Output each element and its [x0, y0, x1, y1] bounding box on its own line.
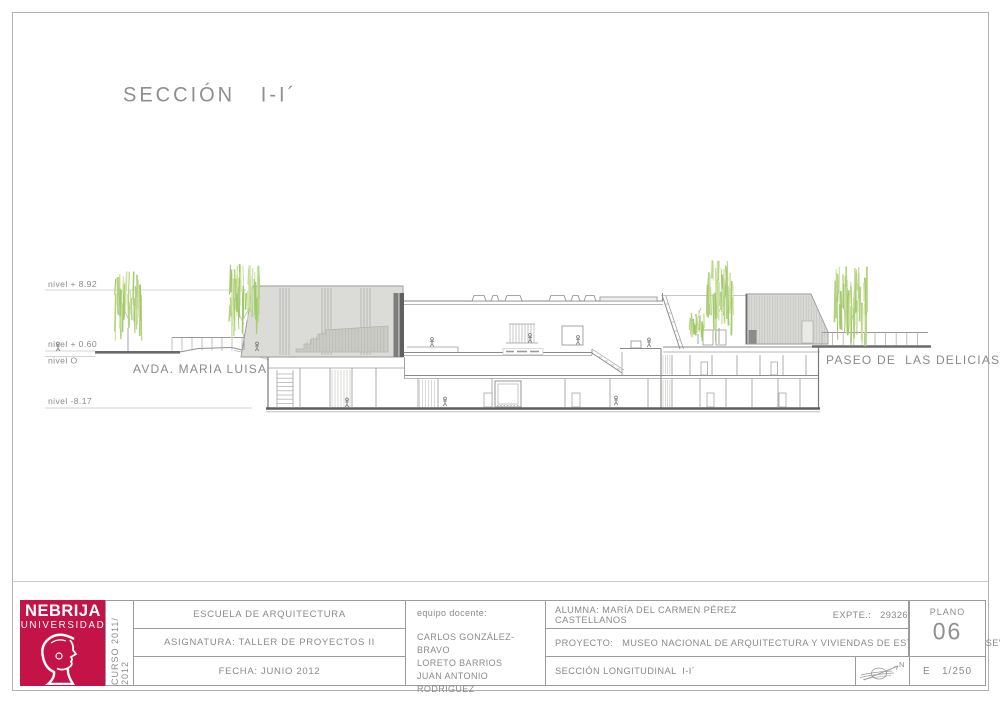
building-section [95, 286, 931, 412]
logo-name: NEBRIJA [25, 603, 101, 620]
team-member: JUAN ANTONIO RODRIGUEZ [417, 670, 545, 696]
level-label-0: nivel O [48, 356, 78, 366]
team-member: LORETO BARRIOS [417, 657, 545, 670]
date-label: FECHA: JUNIO 2012 [219, 666, 321, 677]
sheet-title-label: SECCIÓN LONGITUDINAL I-I´ [555, 666, 695, 676]
scale-label: E 1/250 [923, 666, 972, 677]
team-member: CARLOS GONZÁLEZ-BRAVO [417, 631, 545, 657]
street-label-right: PASEO DE LAS DELICIAS [826, 353, 1000, 367]
level-label-060: nivel + 0.60 [48, 339, 97, 349]
subject-cell: ASIGNATURA: TALLER DE PROYECTOS II [133, 628, 406, 657]
sheet-title-cell: SECCIÓN LONGITUDINAL I-I´ [545, 656, 856, 686]
north-label: N [899, 660, 904, 669]
team-label: equipo docente: [417, 608, 545, 618]
school-label: ESCUELA DE ARQUITECTURA [193, 609, 346, 620]
north-arrow-cell: N [855, 656, 910, 686]
expte-label: EXPTE.: 29326 [833, 610, 908, 620]
level-label-817: nivel -8.17 [48, 396, 92, 406]
date-cell: FECHA: JUNIO 2012 [133, 656, 406, 686]
school-cell: ESCUELA DE ARQUITECTURA [133, 600, 406, 629]
curso-cell: CURSO 2011/ 2012 [105, 600, 134, 686]
north-arrow-icon: N [858, 658, 908, 684]
logo-subtitle: UNIVERSIDAD [21, 620, 106, 631]
plano-cell: PLANO 06 [909, 600, 986, 657]
team-cell: equipo docente: CARLOS GONZÁLEZ-BRAVO LO… [405, 600, 546, 686]
subject-label: ASIGNATURA: TALLER DE PROYECTOS II [164, 637, 375, 648]
student-label: ALUMNA: MARÍA DEL CARMEN PÉREZ CASTELLAN… [555, 605, 791, 625]
street-label-left: AVDA. MARIA LUISA [133, 362, 267, 376]
project-cell: PROYECTO: MUSEO NACIONAL DE ARQUITECTURA… [545, 628, 909, 657]
level-lines [45, 290, 252, 408]
nebrija-logo: NEBRIJA UNIVERSIDAD [20, 600, 106, 686]
plano-label: PLANO [930, 607, 966, 617]
plano-number: 06 [933, 617, 963, 645]
level-label-892: nivel + 8.92 [48, 279, 97, 289]
curso-label: CURSO 2011/ 2012 [110, 601, 130, 685]
student-cell: ALUMNA: MARÍA DEL CARMEN PÉREZ CASTELLAN… [545, 600, 909, 629]
scale-cell: E 1/250 [909, 656, 986, 686]
section-drawing: nivel + 8.92 nivel + 0.60 nivel O nivel … [0, 0, 1000, 702]
plan-sheet: SECCIÓN I-I´ nivel + 8.92 nivel + 0.60 n… [0, 0, 1000, 702]
nebrija-profile-icon [33, 631, 93, 685]
